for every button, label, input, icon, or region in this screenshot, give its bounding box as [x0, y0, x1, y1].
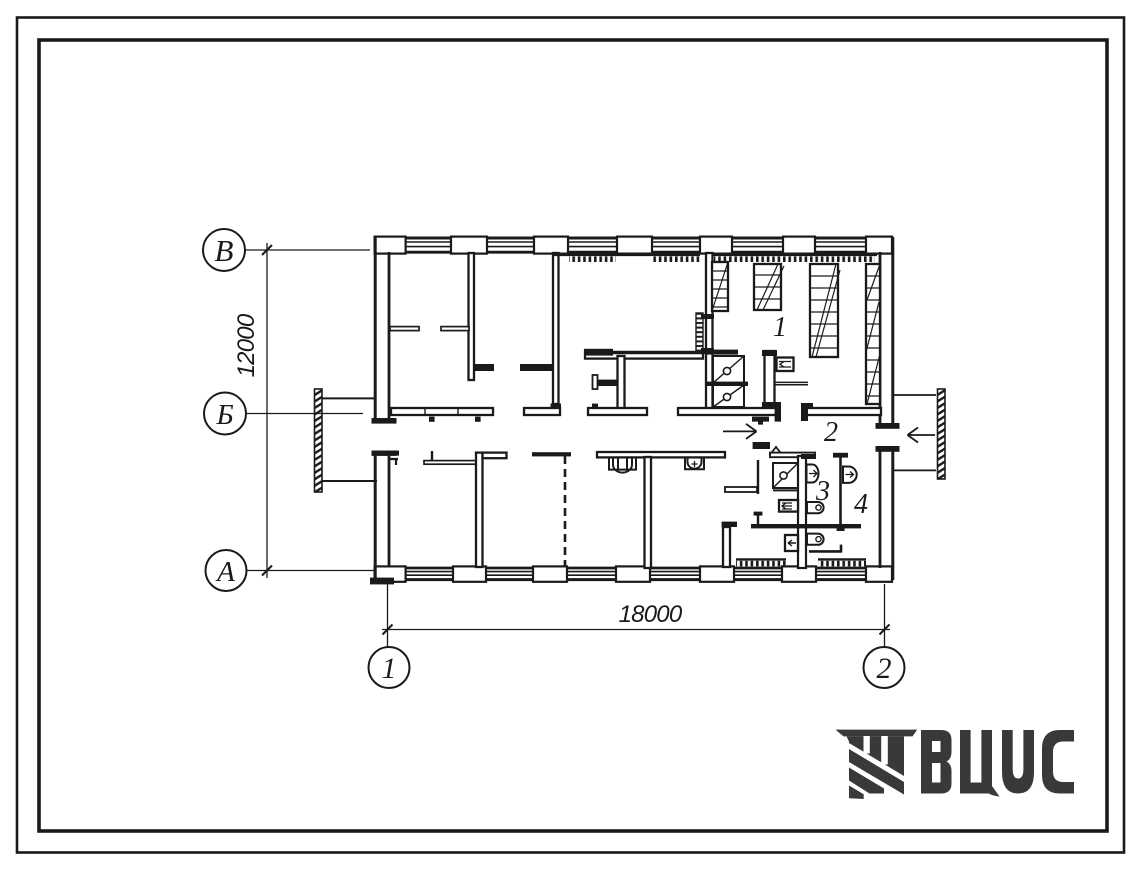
- svg-text:В: В: [215, 233, 234, 268]
- svg-text:2: 2: [824, 417, 838, 448]
- svg-text:Б: Б: [215, 399, 233, 431]
- svg-text:4: 4: [854, 489, 868, 520]
- svg-text:1: 1: [773, 312, 787, 343]
- svg-text:18000: 18000: [619, 601, 683, 628]
- svg-text:2: 2: [877, 652, 892, 685]
- svg-text:12000: 12000: [233, 313, 260, 377]
- svg-text:1: 1: [382, 652, 397, 685]
- svg-text:А: А: [215, 556, 235, 588]
